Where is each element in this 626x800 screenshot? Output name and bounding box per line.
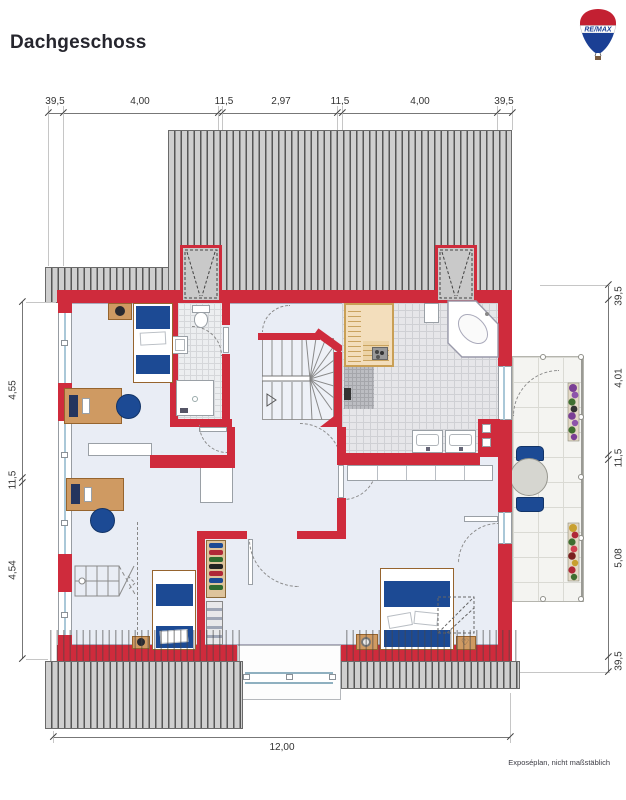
sauna-stove-icon — [372, 347, 388, 360]
dim-label: 11,5 — [614, 449, 625, 468]
sink-icon — [445, 430, 476, 453]
door-leaf — [223, 327, 229, 353]
shower-drain — [192, 396, 198, 402]
shower-fixture — [344, 388, 351, 400]
wall-segment — [342, 453, 480, 465]
dimension-line-bottom — [53, 737, 510, 738]
dim-label: 39,5 — [45, 96, 64, 107]
office-chair-icon — [90, 508, 115, 533]
roof-overlay-hatch — [45, 630, 243, 661]
sideboard — [88, 443, 152, 456]
footer-note: Exposéplan, nicht maßstäblich — [420, 758, 610, 767]
bed-blanket — [136, 306, 170, 329]
dim-label: 11,5 — [8, 471, 19, 490]
shaft — [482, 424, 491, 433]
dim-label: 11,5 — [215, 96, 234, 107]
monitor-icon — [69, 395, 78, 417]
railing-post — [578, 354, 584, 360]
bed-blanket — [156, 584, 193, 606]
window-mullion — [329, 674, 336, 680]
balcony-chair-icon — [516, 497, 544, 512]
remax-balloon-logo-icon: RE/MAX — [576, 7, 620, 61]
dimension-line-top — [48, 113, 512, 114]
wardrobe-clothes-icon — [206, 540, 226, 598]
railing-post — [540, 596, 546, 602]
sink-icon — [412, 430, 443, 453]
keyboard-icon — [82, 398, 90, 414]
dim-label: 2,97 — [271, 96, 290, 107]
railing-post — [540, 354, 546, 360]
dimension-line-right — [608, 285, 609, 672]
roof-slope-line — [137, 522, 138, 645]
wall-segment — [258, 333, 320, 340]
monitor-icon — [71, 484, 80, 504]
window-mullion — [243, 674, 250, 680]
attic-ladder-icon — [74, 560, 140, 604]
logo-text: RE/MAX — [584, 27, 613, 34]
wall-segment — [297, 531, 341, 539]
railing-post — [578, 474, 584, 480]
page-title: Dachgeschoss — [10, 32, 147, 54]
roof-hatch-bottom-right — [341, 661, 520, 689]
wall-segment — [58, 303, 72, 313]
window-mullion — [61, 452, 68, 458]
window-glass-line — [503, 366, 505, 420]
window-mullion — [286, 674, 293, 680]
window-mullion — [61, 520, 68, 526]
dim-label: 4,00 — [130, 96, 149, 107]
wall-segment — [337, 427, 346, 465]
wall-segment — [197, 531, 247, 539]
lamp-icon — [115, 306, 125, 316]
bed-pillow — [413, 611, 438, 626]
sauna-bench — [348, 307, 361, 363]
balcony-door-opening — [498, 512, 512, 544]
bed-blanket — [136, 355, 170, 374]
flower-box-icon — [565, 522, 582, 582]
dormer-window-icon — [435, 245, 477, 303]
toilet-icon — [194, 312, 208, 328]
window-mullion — [61, 340, 68, 346]
sink-basin — [175, 339, 185, 351]
railing-post — [578, 596, 584, 602]
staircase-icon — [262, 338, 334, 420]
dormer-window-icon — [180, 245, 222, 303]
dim-label: 5,08 — [614, 548, 625, 567]
shower-fixture — [180, 408, 188, 413]
shaft — [482, 438, 491, 447]
roof-hatch-bottom-left — [45, 661, 243, 729]
dim-label: 12,00 — [269, 742, 294, 753]
dim-label: 39,5 — [614, 286, 625, 305]
flower-box-icon — [565, 382, 582, 442]
roof-slope-marker — [437, 596, 475, 634]
dim-label: 39,5 — [614, 651, 625, 670]
sauna-icon — [344, 303, 394, 367]
window-mullion — [61, 612, 68, 618]
roof-overlay-hatch — [341, 630, 520, 661]
wall-segment — [150, 455, 235, 468]
wall-segment — [337, 498, 346, 539]
window-glass-line — [64, 303, 66, 645]
window-glass-line — [503, 512, 505, 544]
keyboard-icon — [84, 487, 92, 502]
bathtub-icon — [447, 300, 499, 358]
dim-label: 39,5 — [494, 96, 513, 107]
dim-label: 11,5 — [331, 96, 350, 107]
dim-label: 4,01 — [614, 368, 625, 387]
wardrobe-row — [347, 465, 493, 481]
floorplan-page: Dachgeschoss RE/MAX — [0, 0, 626, 800]
balcony-table-icon — [510, 458, 548, 496]
bed-pillow — [140, 331, 167, 345]
dim-label: 4,55 — [8, 380, 19, 399]
cabinet — [200, 467, 233, 503]
bath-shelf — [424, 303, 439, 323]
dim-label: 4,54 — [8, 560, 19, 579]
dim-label: 4,00 — [410, 96, 429, 107]
door-leaf — [464, 516, 498, 522]
balcony-door-opening — [498, 366, 512, 420]
office-chair-icon — [116, 394, 141, 419]
wall-segment — [222, 354, 230, 419]
wall-segment — [498, 303, 512, 645]
wall-segment — [222, 303, 230, 325]
wall-segment — [58, 554, 72, 592]
